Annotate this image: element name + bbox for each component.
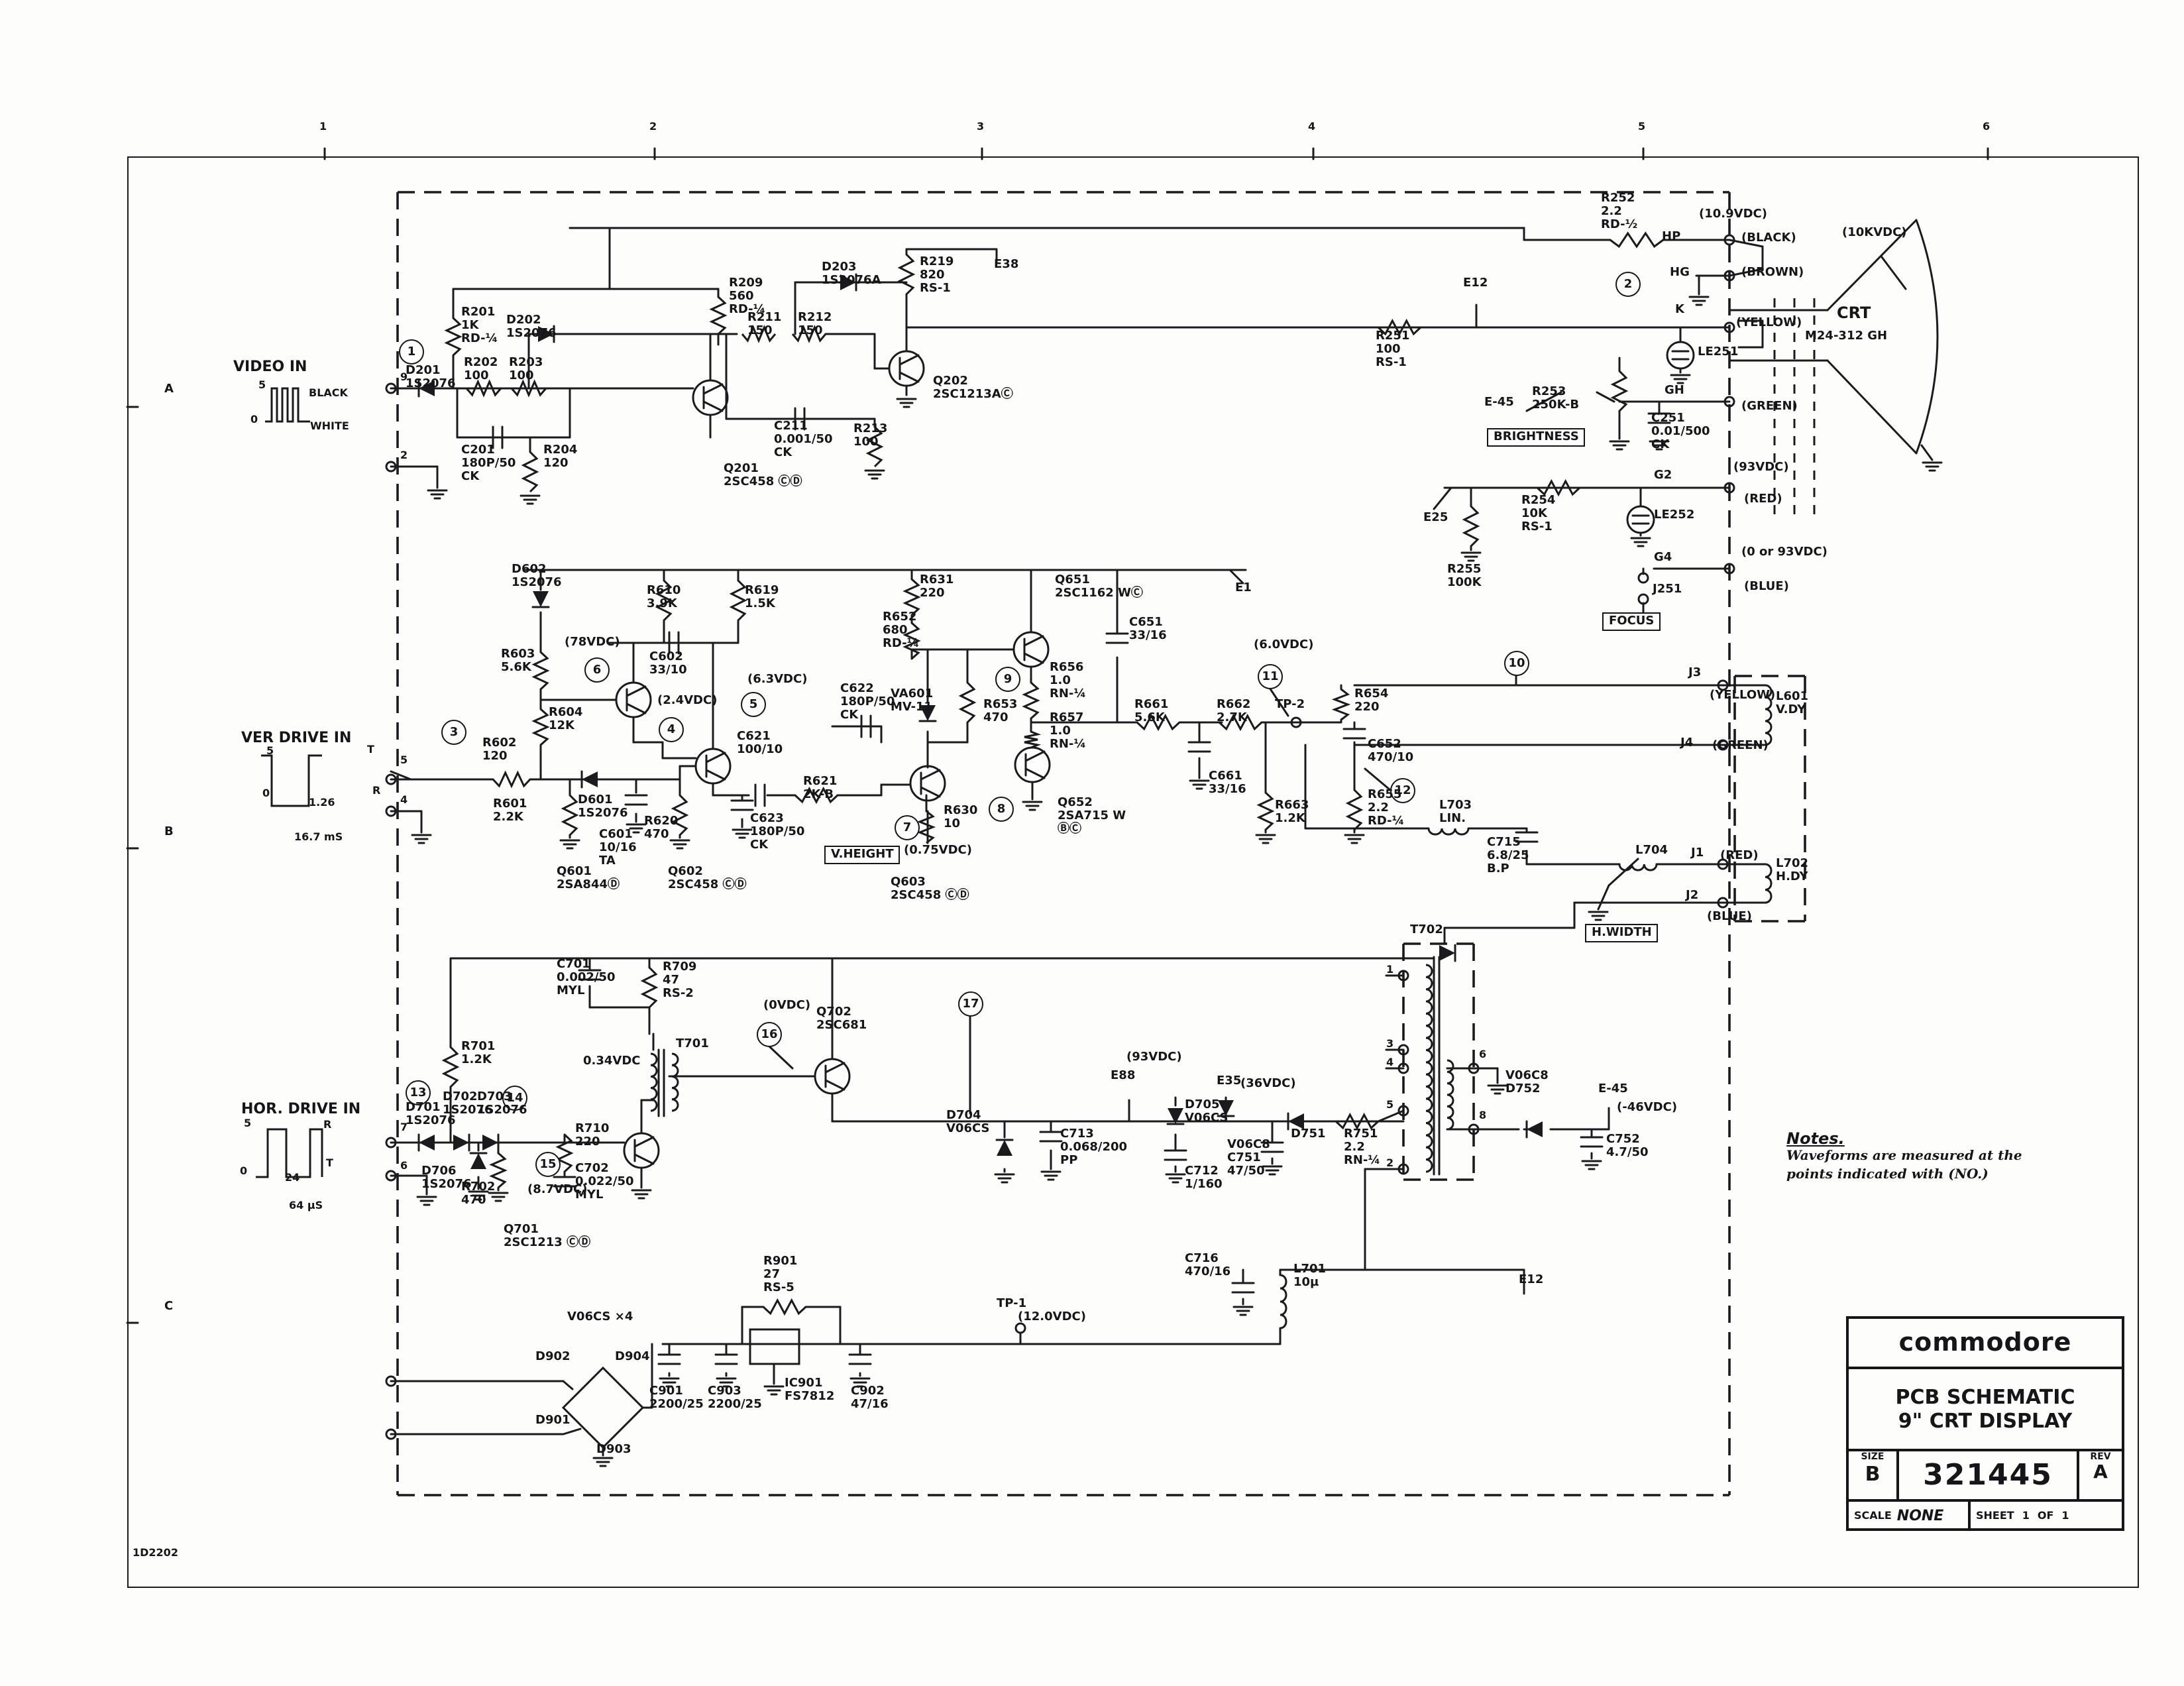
label-ic901: IC901 FS7812 bbox=[785, 1378, 834, 1405]
label-q201: Q201 2SC458 ⒸⒹ bbox=[724, 464, 802, 490]
label-12vdc: (12.0VDC) bbox=[1018, 1312, 1086, 1325]
wavepoint-16: 16 bbox=[757, 1022, 782, 1047]
label-r201: R201 1K RD-¼ bbox=[461, 308, 498, 347]
vheight-box: V.HEIGHT bbox=[824, 846, 901, 864]
sheet-label: SHEET bbox=[1976, 1509, 2014, 1521]
video-pin-b: 2 bbox=[400, 451, 408, 463]
drawing-number: 321445 bbox=[1899, 1451, 2077, 1499]
label-l702: L702 H.DY bbox=[1776, 859, 1808, 885]
label-l601: L601 V.DY bbox=[1776, 692, 1808, 718]
brightness-box: BRIGHTNESS bbox=[1487, 428, 1586, 447]
label-c752: C752 4.7/50 bbox=[1606, 1135, 1649, 1161]
label-green-yoke: (GREEN) bbox=[1712, 741, 1769, 754]
label-d704: D704 V06CS bbox=[946, 1111, 990, 1137]
label-le252: LE252 bbox=[1654, 510, 1694, 524]
label-c903: C903 2200/25 bbox=[708, 1386, 762, 1413]
label-t702: T702 bbox=[1410, 925, 1443, 938]
ruler-top-3: 3 bbox=[977, 122, 984, 134]
label-c622: C622 180P/50 CK bbox=[840, 684, 895, 723]
label-r252: R252 2.2 RD-½ bbox=[1601, 194, 1637, 233]
label-crt-model: M24-312 GH bbox=[1805, 331, 1887, 345]
label-d202: D202 1S2076 bbox=[506, 315, 557, 342]
label-t702-pin3: 3 bbox=[1386, 1039, 1393, 1051]
label-r203: R203 100 bbox=[509, 358, 543, 384]
label-c715: C715 6.8/25 B.P bbox=[1487, 838, 1529, 877]
label-c751: V06C8 C751 47/50 bbox=[1227, 1140, 1270, 1179]
label-r253: R253 250K-B bbox=[1532, 387, 1579, 414]
label-r601: R601 2.2K bbox=[493, 799, 527, 826]
label-blue-wire: (BLUE) bbox=[1744, 582, 1789, 595]
wavepoint-1: 1 bbox=[399, 339, 424, 365]
label-r662: R662 2.7K bbox=[1217, 700, 1250, 726]
label-tp2: TP-2 bbox=[1275, 700, 1305, 713]
sheet-value: 1 bbox=[2022, 1509, 2030, 1521]
label-r254: R254 10K RS-1 bbox=[1521, 496, 1555, 535]
label-e25: E25 bbox=[1423, 513, 1448, 526]
label-36vdc: (36VDC) bbox=[1240, 1079, 1296, 1092]
label-r212: R212 150 bbox=[798, 313, 832, 339]
label-c652: C652 470/10 bbox=[1368, 740, 1413, 766]
ver-level-0: 0 bbox=[262, 789, 270, 801]
label-6-3vdc: (6.3VDC) bbox=[747, 675, 807, 688]
label-r653: R653 470 bbox=[983, 700, 1017, 726]
label-93vdc-h: (93VDC) bbox=[1126, 1052, 1182, 1066]
label-c211: C211 0.001/50 CK bbox=[774, 421, 833, 461]
ver-drive-title: VER DRIVE IN bbox=[241, 730, 351, 746]
label-d602: D602 1S2076 bbox=[512, 565, 562, 591]
label-r751: R751 2.2 RN-¼ bbox=[1344, 1129, 1380, 1168]
label-10-9vdc: (10.9VDC) bbox=[1699, 209, 1767, 223]
ver-pin-b: 4 bbox=[400, 795, 408, 807]
label-t702-pin6: 6 bbox=[1479, 1050, 1486, 1062]
ruler-top-5: 5 bbox=[1638, 122, 1645, 134]
label-r652: R652 680 RD-¼ bbox=[883, 612, 919, 651]
label-r204: R204 120 bbox=[543, 445, 577, 472]
label-d751: D751 bbox=[1291, 1129, 1326, 1143]
label-yellow-yoke: (YELLOW) bbox=[1710, 691, 1775, 704]
label-r603: R603 5.6K bbox=[501, 649, 535, 676]
wavepoint-7: 7 bbox=[895, 815, 920, 840]
label-c702: C702 0.022/50 MYL bbox=[575, 1164, 634, 1203]
label-r710: R710 220 bbox=[575, 1124, 609, 1151]
label-c901: C901 2200/25 bbox=[649, 1386, 704, 1413]
label-c651: C651 33/16 bbox=[1129, 618, 1167, 644]
label-c601: C601 10/16 TA bbox=[599, 830, 637, 869]
label-r213: R213 100 bbox=[853, 424, 887, 451]
label-v06cs-x4: V06CS ×4 bbox=[567, 1312, 633, 1325]
label-e12-top: E12 bbox=[1463, 278, 1488, 292]
label-e45: E-45 bbox=[1484, 398, 1514, 411]
ver-t: T bbox=[367, 745, 374, 757]
label-c251: C251 0.01/500 CK bbox=[1651, 414, 1710, 453]
video-in-title: VIDEO IN bbox=[233, 359, 307, 375]
rev-value: A bbox=[2093, 1462, 2108, 1483]
ver-period: 16.7 mS bbox=[294, 832, 343, 844]
label-0-34vdc: 0.34VDC bbox=[583, 1056, 641, 1070]
label-r654: R654 220 bbox=[1354, 689, 1388, 716]
video-level-0: 0 bbox=[250, 415, 258, 427]
wavepoint-11: 11 bbox=[1258, 664, 1283, 689]
ruler-side-c: C bbox=[164, 1302, 173, 1315]
drawing-title-line2: 9" CRT DISPLAY bbox=[1898, 1409, 2073, 1433]
label-red-yoke: (RED) bbox=[1720, 851, 1759, 864]
hor-t: T bbox=[326, 1158, 333, 1170]
label-t701: T701 bbox=[676, 1039, 709, 1052]
doc-number: 1D2202 bbox=[133, 1548, 178, 1560]
label-crt-anode: (10KVDC) bbox=[1842, 228, 1907, 241]
brand-logo: commodore bbox=[1899, 1328, 2072, 1357]
label-r610: R610 3.9K bbox=[647, 586, 681, 612]
hor-width: 24 bbox=[285, 1173, 300, 1185]
label-d901: D901 bbox=[535, 1416, 571, 1429]
label-93vdc: (93VDC) bbox=[1733, 463, 1789, 476]
label-r655: R655 2.2 RD-¼ bbox=[1368, 790, 1404, 829]
label-green-wire: (GREEN) bbox=[1741, 402, 1798, 415]
label-d705: D705 V06CS bbox=[1185, 1100, 1228, 1127]
label-r619: R619 1.5K bbox=[745, 586, 779, 612]
ruler-side-b: B bbox=[164, 827, 174, 840]
wavepoint-2: 2 bbox=[1615, 272, 1641, 297]
label-q652: Q652 2SA715 W ⒷⒸ bbox=[1058, 798, 1126, 837]
label-d203: D203 1S2076A bbox=[822, 262, 881, 289]
label-g2: G2 bbox=[1654, 471, 1672, 484]
label-black-wire: (BLACK) bbox=[1741, 233, 1796, 247]
label-crt: CRT bbox=[1837, 305, 1871, 322]
label-d703: D703 1S2076 bbox=[477, 1092, 527, 1119]
label-r656: R656 1.0 RN-¼ bbox=[1050, 663, 1086, 702]
label-l701: L701 10µ bbox=[1293, 1264, 1326, 1291]
label-d902: D902 bbox=[535, 1352, 571, 1365]
title-block: commodore PCB SCHEMATIC 9" CRT DISPLAY S… bbox=[1846, 1316, 2124, 1531]
label-0-75vdc: (0.75VDC) bbox=[904, 846, 972, 859]
label-c713: C713 0.068/200 PP bbox=[1060, 1129, 1127, 1168]
label-yellow-wire: (YELLOW) bbox=[1736, 318, 1802, 331]
label-hg: HG bbox=[1670, 268, 1690, 281]
ver-level-5: 5 bbox=[266, 746, 274, 758]
label-r709: R709 47 RS-2 bbox=[663, 962, 696, 1001]
label-l704: L704 bbox=[1635, 846, 1668, 859]
of-label: OF bbox=[2038, 1509, 2054, 1521]
video-white-label: WHITE bbox=[310, 421, 349, 433]
notes-title: Notes. bbox=[1786, 1129, 2022, 1148]
label-t702-pin4: 4 bbox=[1386, 1058, 1393, 1070]
ruler-top-6: 6 bbox=[1983, 122, 1990, 134]
label-0vdc: (0VDC) bbox=[763, 1001, 810, 1014]
wavepoint-6: 6 bbox=[584, 657, 610, 683]
label-gh: GH bbox=[1665, 386, 1684, 399]
label-r219: R219 820 RS-1 bbox=[920, 257, 954, 296]
notes-section: Notes. Waveforms are measured at the poi… bbox=[1786, 1129, 2022, 1184]
label-r630: R630 10 bbox=[944, 806, 977, 832]
wavepoint-9: 9 bbox=[995, 667, 1020, 692]
label-r202: R202 100 bbox=[464, 358, 498, 384]
of-value: 1 bbox=[2061, 1509, 2069, 1521]
label-d601: D601 1S2076 bbox=[578, 795, 628, 822]
label-l703: L703 LIN. bbox=[1439, 801, 1472, 827]
hor-period: 64 µS bbox=[289, 1201, 323, 1213]
label-k: K bbox=[1675, 305, 1684, 318]
label-r702: R702 470 bbox=[461, 1182, 495, 1209]
label-r211: R211 150 bbox=[747, 313, 781, 339]
wavepoint-4: 4 bbox=[659, 717, 684, 742]
label-j251: J251 bbox=[1653, 585, 1682, 598]
scanned-schematic-page: 1 2 3 4 5 6 A B C 1D2202 VIDEO IN 5 0 BL… bbox=[0, 0, 2184, 1686]
ver-pin-a: 5 bbox=[400, 756, 408, 767]
label-r901: R901 27 RS-5 bbox=[763, 1257, 797, 1296]
label-r663: R663 1.2K bbox=[1275, 801, 1309, 827]
wavepoint-5: 5 bbox=[741, 692, 766, 717]
label-78vdc: (78VDC) bbox=[565, 638, 620, 651]
hor-r: R bbox=[323, 1120, 331, 1132]
label-e12-bottom: E12 bbox=[1519, 1275, 1543, 1288]
label-r661: R661 5.6K bbox=[1134, 700, 1168, 726]
label-q702: Q702 2SC681 bbox=[816, 1007, 867, 1034]
label-c201: C201 180P/50 CK bbox=[461, 445, 516, 484]
label-6-0vdc: (6.0VDC) bbox=[1254, 640, 1313, 653]
label-e38: E38 bbox=[994, 260, 1018, 273]
rev-label: REV bbox=[2090, 1451, 2110, 1462]
label-r657: R657 1.0 RN-¼ bbox=[1050, 713, 1086, 752]
scale-value: NONE bbox=[1897, 1506, 1944, 1524]
label-r604: R604 12K bbox=[549, 708, 582, 734]
label-d903: D903 bbox=[596, 1445, 631, 1458]
size-value: B bbox=[1865, 1462, 1881, 1486]
label-e35: E35 bbox=[1217, 1076, 1241, 1090]
label-e45-h: E-45 bbox=[1598, 1084, 1628, 1097]
label-q651: Q651 2SC1162 WⒸ bbox=[1055, 575, 1143, 602]
label-t702-pin2: 2 bbox=[1386, 1158, 1393, 1170]
label-le251: LE251 bbox=[1698, 347, 1738, 361]
ruler-top-1: 1 bbox=[319, 122, 327, 134]
label-c712: C712 1/160 bbox=[1185, 1166, 1223, 1193]
label-r602: R602 120 bbox=[482, 738, 516, 765]
label-j3: J3 bbox=[1688, 668, 1701, 681]
notes-line1: Waveforms are measured at the bbox=[1786, 1148, 2022, 1166]
label-q602: Q602 2SC458 ⒸⒹ bbox=[668, 867, 747, 893]
label-q701: Q701 2SC1213 ⒸⒹ bbox=[504, 1225, 590, 1251]
video-black-label: BLACK bbox=[309, 388, 348, 400]
label-r631: R631 220 bbox=[920, 575, 954, 602]
label-red-wire: (RED) bbox=[1744, 494, 1782, 508]
label-j4: J4 bbox=[1680, 738, 1693, 752]
wavepoint-8: 8 bbox=[989, 797, 1014, 822]
label-q202: Q202 2SC1213AⒸ bbox=[933, 376, 1013, 403]
hor-drive-title: HOR. DRIVE IN bbox=[241, 1101, 360, 1117]
label-c602: C602 33/10 bbox=[649, 652, 687, 679]
wavepoint-10: 10 bbox=[1504, 651, 1529, 676]
wavepoint-15: 15 bbox=[535, 1152, 561, 1177]
label-q601: Q601 2SA844Ⓓ bbox=[557, 867, 620, 893]
label-c716: C716 470/16 bbox=[1185, 1254, 1230, 1280]
scale-label: SCALE bbox=[1854, 1509, 1892, 1521]
wavepoint-3: 3 bbox=[441, 720, 466, 745]
label-d201: D201 1S2076 bbox=[406, 366, 456, 392]
label-t702-pin1: 1 bbox=[1386, 965, 1393, 977]
label-t702-pin8: 8 bbox=[1479, 1111, 1486, 1123]
label-0or93vdc: (0 or 93VDC) bbox=[1741, 547, 1828, 561]
drawing-title-line1: PCB SCHEMATIC bbox=[1896, 1385, 2075, 1409]
ruler-top-4: 4 bbox=[1308, 122, 1315, 134]
label-d752: V06C8 D752 bbox=[1505, 1071, 1549, 1097]
label-r701: R701 1.2K bbox=[461, 1042, 495, 1068]
size-label: SIZE bbox=[1861, 1451, 1884, 1462]
label-c621: C621 100/10 bbox=[737, 732, 783, 758]
label-j2: J2 bbox=[1686, 891, 1698, 904]
ver-width: 1.26 bbox=[309, 798, 335, 810]
label-r620: R620 470 bbox=[644, 816, 678, 843]
label-r255: R255 100K bbox=[1447, 565, 1482, 591]
ver-r: R bbox=[372, 786, 380, 798]
label-e1: E1 bbox=[1235, 583, 1252, 596]
label-c701: C701 0.002/50 MYL bbox=[557, 960, 616, 999]
label-blue-yoke: (BLUE) bbox=[1707, 912, 1752, 925]
label-tp1: TP-1 bbox=[997, 1299, 1026, 1312]
label-brown-wire: (BROWN) bbox=[1741, 268, 1804, 281]
label-c661: C661 33/16 bbox=[1209, 771, 1246, 798]
schematic-sheet: 1 2 3 4 5 6 A B C 1D2202 VIDEO IN 5 0 BL… bbox=[0, 0, 2184, 1686]
hwidth-box: H.WIDTH bbox=[1585, 924, 1659, 942]
ruler-top-2: 2 bbox=[649, 122, 657, 134]
label-t702-pin5: 5 bbox=[1386, 1100, 1393, 1112]
label-va601: VA601 MV-11 bbox=[891, 689, 933, 716]
label-j1: J1 bbox=[1691, 848, 1704, 862]
label-c623: C623 180P/50 CK bbox=[750, 814, 804, 853]
label-c902: C902 47/16 bbox=[851, 1386, 889, 1413]
hor-level-0: 0 bbox=[240, 1166, 247, 1178]
label-q603: Q603 2SC458 ⒸⒹ bbox=[891, 877, 969, 904]
label-hp: HP bbox=[1662, 232, 1680, 245]
label-neg46vdc: (-46VDC) bbox=[1617, 1103, 1677, 1116]
hor-level-5: 5 bbox=[244, 1119, 251, 1131]
label-r621: R621 2K-B bbox=[803, 777, 837, 803]
ruler-side-a: A bbox=[164, 384, 174, 398]
notes-line2: points indicated with (NO.) bbox=[1786, 1166, 2022, 1184]
hor-pin-b: 6 bbox=[400, 1161, 408, 1173]
wavepoint-17: 17 bbox=[958, 991, 983, 1017]
label-2-4vdc: (2.4VDC) bbox=[657, 696, 717, 709]
video-level-5: 5 bbox=[258, 380, 266, 392]
label-r251: R251 100 RS-1 bbox=[1376, 331, 1409, 370]
focus-box: FOCUS bbox=[1602, 612, 1661, 631]
label-d904: D904 bbox=[615, 1352, 650, 1365]
label-g4: G4 bbox=[1654, 553, 1672, 566]
label-e88: E88 bbox=[1111, 1071, 1135, 1084]
